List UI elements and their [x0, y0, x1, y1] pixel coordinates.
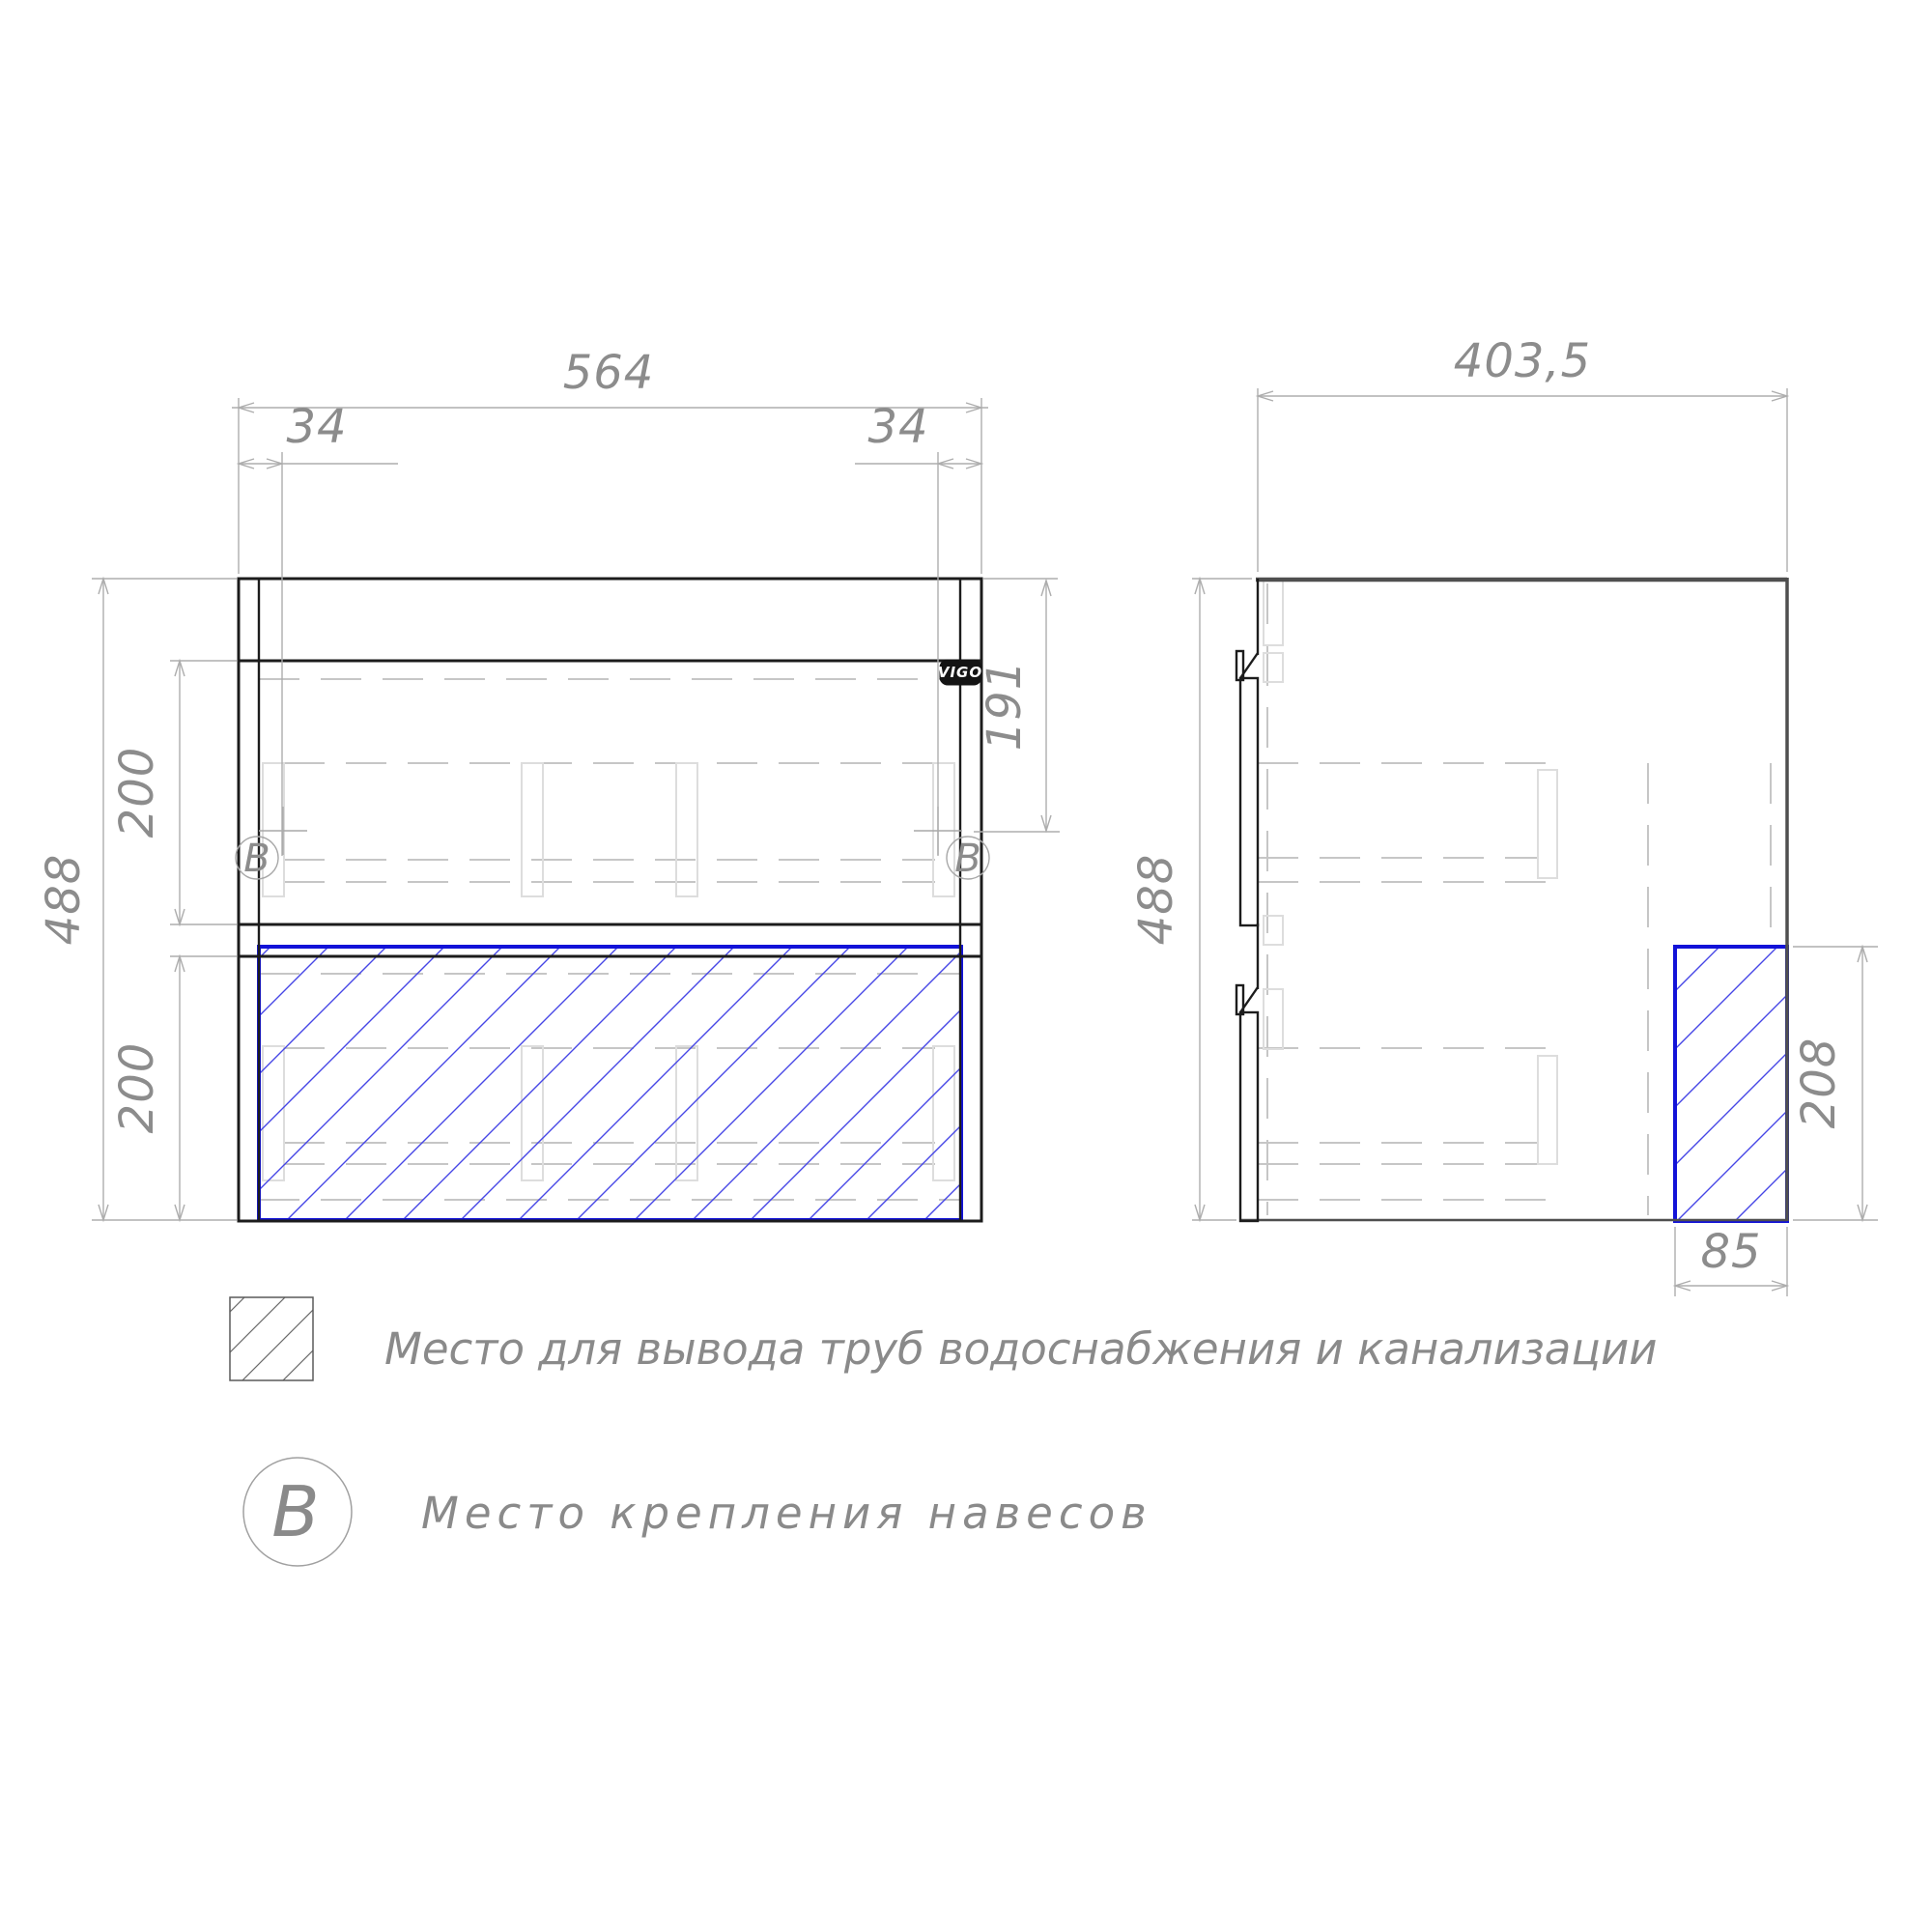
mount-marker-left-label: B — [243, 837, 270, 881]
legend-mount-label: Место крепления навесов — [421, 1488, 1152, 1539]
dim-front-offset-right: 34 — [867, 400, 928, 454]
dim-front-offset-left: 34 — [286, 400, 347, 454]
vanity-cabinet-drawing: VIGO B B — [0, 0, 1932, 1932]
dim-front-height: 488 — [37, 854, 91, 946]
legend-hatch-swatch — [230, 1297, 313, 1380]
legend: Место для вывода труб водоснабжения и ка… — [230, 1297, 1658, 1566]
dim-front-width: 564 — [563, 346, 655, 400]
brand-badge: VIGO — [938, 660, 982, 685]
pipe-zone-side — [1675, 947, 1787, 1221]
dim-pipe-zone-depth: 85 — [1700, 1225, 1761, 1279]
dim-pipe-zone-height: 208 — [1792, 1037, 1846, 1129]
dim-side-depth: 403,5 — [1454, 334, 1591, 388]
side-view: 403,5 488 208 85 — [1129, 334, 1878, 1296]
mount-marker-right-label: B — [954, 837, 980, 881]
mount-marker-right: B — [914, 807, 989, 881]
front-view: VIGO B B — [37, 346, 1060, 1221]
dim-mount-drop: 191 — [978, 660, 1032, 752]
mount-marker-left: B — [236, 807, 307, 881]
upper-drawer-profile — [1236, 651, 1258, 925]
technical-drawing-page: VIGO B B — [0, 0, 1932, 1932]
pipe-zone-front — [259, 947, 961, 1220]
dim-side-height: 488 — [1129, 854, 1183, 946]
dim-upper-drawer-height: 200 — [110, 747, 164, 838]
brand-badge-label: VIGO — [938, 664, 982, 681]
dim-lower-drawer-height: 200 — [110, 1042, 164, 1134]
legend-mount-symbol: B — [271, 1471, 319, 1552]
lower-drawer-profile — [1236, 985, 1258, 1221]
legend-pipe-zone-label: Место для вывода труб водоснабжения и ка… — [384, 1323, 1658, 1375]
